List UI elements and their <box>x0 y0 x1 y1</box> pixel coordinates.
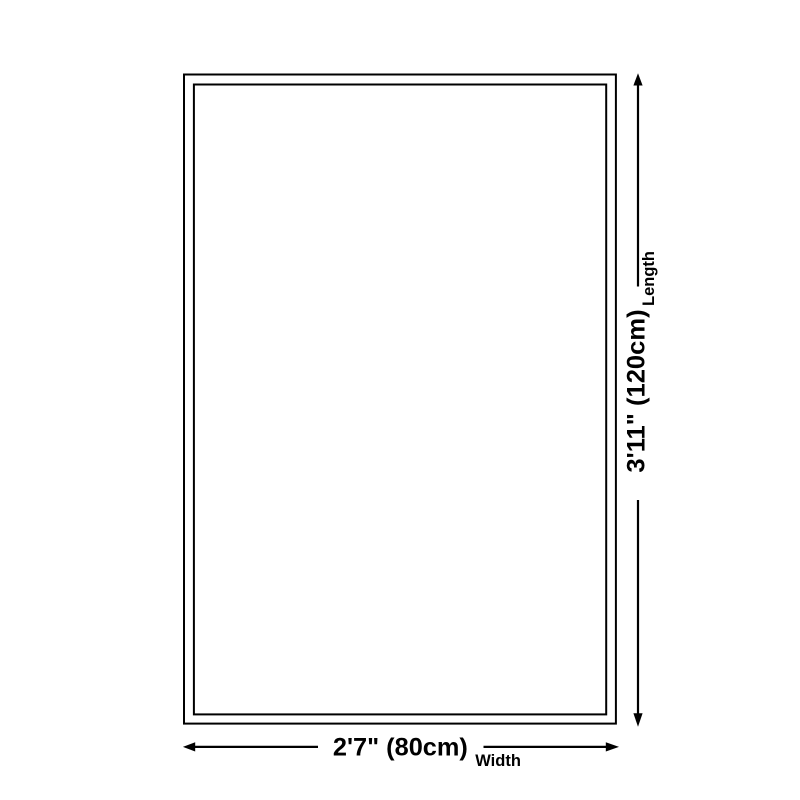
svg-text:3'11" (120cm): 3'11" (120cm) <box>623 309 651 472</box>
svg-text:Width: Width <box>475 752 521 770</box>
svg-text:2'7" (80cm): 2'7" (80cm) <box>333 734 468 762</box>
svg-text:Length: Length <box>640 251 658 306</box>
